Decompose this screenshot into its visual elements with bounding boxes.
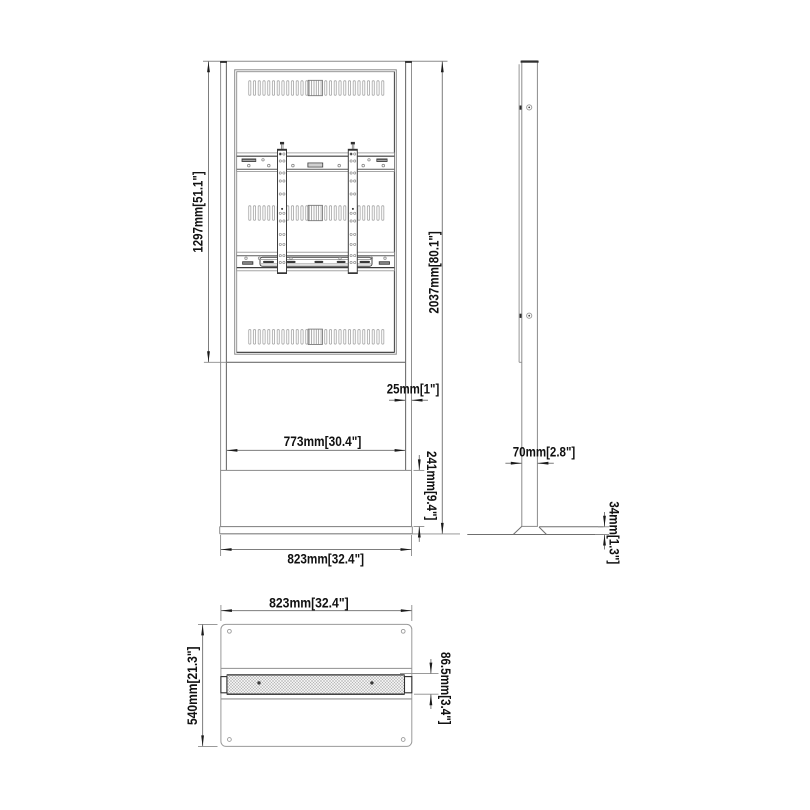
svg-text:2037mm[80.1"]: 2037mm[80.1"]: [426, 231, 441, 313]
svg-text:86.5mm[3.4"]: 86.5mm[3.4"]: [438, 652, 453, 725]
svg-text:70mm[2.8"]: 70mm[2.8"]: [513, 444, 576, 459]
svg-text:823mm[32.4"]: 823mm[32.4"]: [287, 551, 364, 566]
svg-text:34mm[1.3"]: 34mm[1.3"]: [607, 501, 622, 564]
svg-text:773mm[30.4"]: 773mm[30.4"]: [284, 434, 362, 449]
svg-text:540mm[21.3"]: 540mm[21.3"]: [185, 646, 200, 725]
svg-text:823mm[32.4"]: 823mm[32.4"]: [269, 595, 349, 610]
svg-text:241mm[9.4"]: 241mm[9.4"]: [424, 451, 439, 520]
svg-text:25mm[1"]: 25mm[1"]: [387, 382, 440, 397]
svg-text:1297mm[51.1"]: 1297mm[51.1"]: [191, 171, 206, 252]
